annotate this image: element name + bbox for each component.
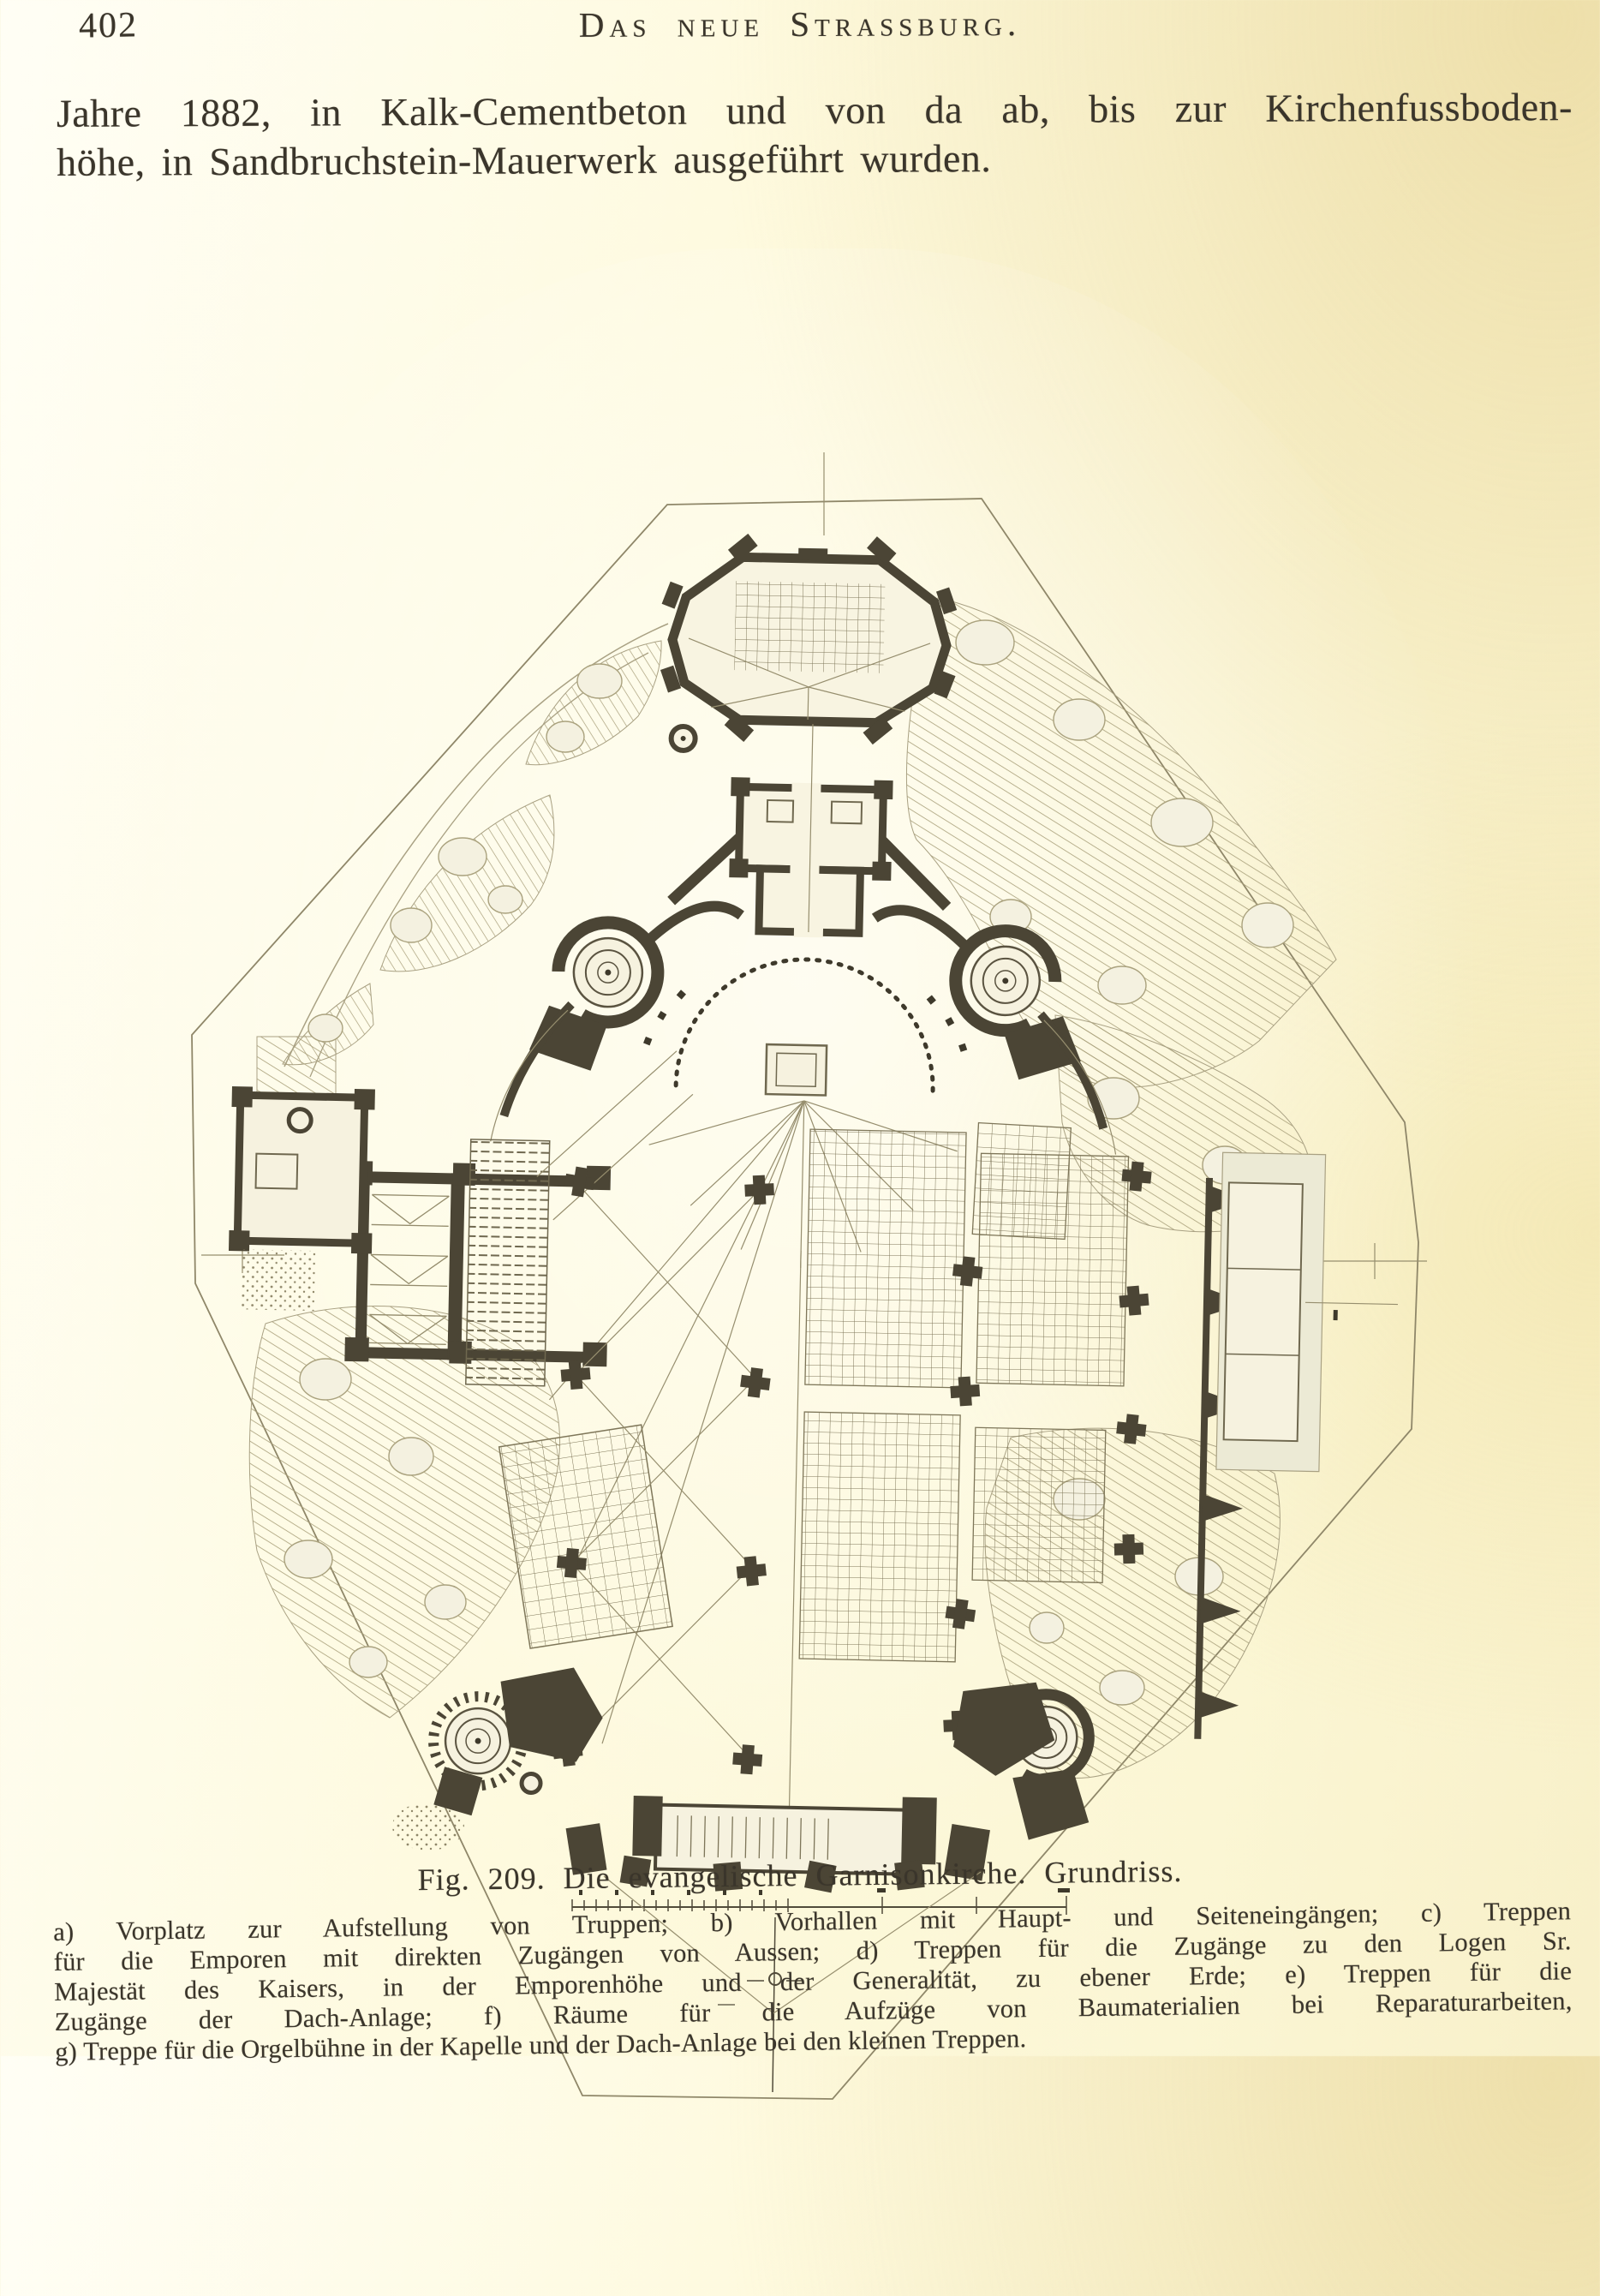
body-paragraph: Jahre 1882, in Kalk-Cementbeton und von … [57, 82, 1573, 187]
running-header: Das neue Strassburg. [0, 1, 1600, 48]
figure-legend: a) Vorplatz zur Aufstellung von Truppen;… [53, 1896, 1573, 2067]
west-porch [228, 1086, 375, 1312]
paragraph-line: Jahre 1882, in Kalk-Cementbeton und von … [57, 82, 1573, 138]
left-stair-tower [432, 1665, 604, 1818]
colonnade-dots [643, 989, 969, 1052]
garden-crescent-b [380, 795, 554, 972]
left-round-tower [491, 901, 742, 1146]
garden-crescent-a [526, 641, 661, 765]
figure-floor-plan [0, 240, 1600, 1868]
paragraph-line: höhe, in Sandbruchstein-Mauerwerk ausgef… [57, 131, 1573, 187]
chapel-pew-grid [734, 581, 885, 673]
altar-platform [766, 1044, 827, 1095]
left-gallery-grid [499, 1425, 672, 1648]
